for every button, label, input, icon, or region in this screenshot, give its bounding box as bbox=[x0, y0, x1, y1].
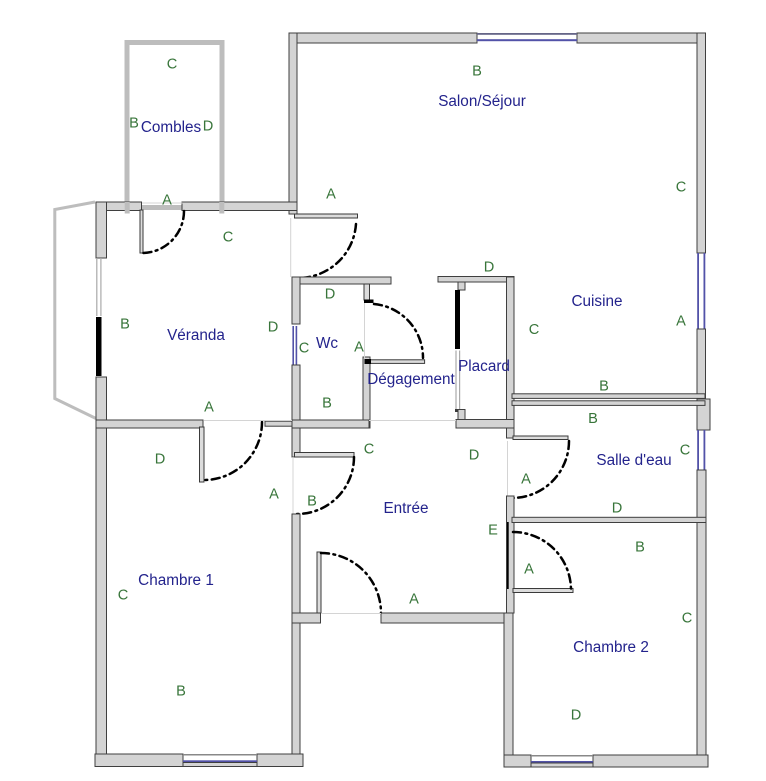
svg-text:A: A bbox=[676, 314, 686, 330]
svg-text:C: C bbox=[364, 442, 375, 458]
svg-text:C: C bbox=[682, 611, 693, 627]
svg-text:D: D bbox=[469, 448, 480, 464]
svg-text:D: D bbox=[571, 708, 582, 724]
svg-text:D: D bbox=[203, 119, 214, 135]
svg-text:B: B bbox=[599, 379, 609, 395]
svg-text:B: B bbox=[635, 540, 645, 556]
svg-text:D: D bbox=[612, 501, 623, 517]
svg-text:Entrée: Entrée bbox=[383, 500, 428, 517]
svg-text:A: A bbox=[269, 487, 279, 503]
svg-text:C: C bbox=[529, 322, 540, 338]
svg-text:Cuisine: Cuisine bbox=[571, 293, 622, 310]
svg-text:B: B bbox=[322, 396, 332, 412]
svg-text:Combles: Combles bbox=[141, 119, 202, 136]
svg-text:B: B bbox=[307, 494, 317, 510]
svg-text:Wc: Wc bbox=[316, 335, 338, 352]
svg-text:D: D bbox=[325, 287, 336, 303]
svg-text:D: D bbox=[268, 320, 279, 336]
svg-text:C: C bbox=[680, 443, 691, 459]
svg-text:A: A bbox=[162, 193, 172, 209]
svg-text:Dégagement: Dégagement bbox=[367, 371, 455, 388]
svg-text:B: B bbox=[120, 317, 130, 333]
svg-text:A: A bbox=[409, 592, 419, 608]
svg-text:A: A bbox=[326, 187, 336, 203]
svg-text:Chambre 2: Chambre 2 bbox=[573, 639, 649, 656]
svg-text:B: B bbox=[176, 684, 186, 700]
svg-text:C: C bbox=[223, 230, 234, 246]
svg-text:D: D bbox=[484, 260, 495, 276]
svg-text:D: D bbox=[155, 452, 166, 468]
svg-text:Chambre 1: Chambre 1 bbox=[138, 572, 214, 589]
svg-text:Salon/Séjour: Salon/Séjour bbox=[438, 93, 526, 110]
svg-text:A: A bbox=[524, 562, 534, 578]
svg-text:B: B bbox=[129, 116, 139, 132]
svg-text:B: B bbox=[588, 411, 598, 427]
svg-text:C: C bbox=[299, 341, 310, 357]
svg-text:C: C bbox=[118, 588, 129, 604]
svg-text:Placard: Placard bbox=[458, 358, 510, 375]
svg-text:E: E bbox=[488, 523, 498, 539]
svg-text:Salle d'eau: Salle d'eau bbox=[596, 452, 671, 469]
svg-text:C: C bbox=[676, 180, 687, 196]
svg-text:Véranda: Véranda bbox=[167, 327, 225, 344]
svg-text:A: A bbox=[521, 472, 531, 488]
svg-text:A: A bbox=[204, 400, 214, 416]
svg-text:A: A bbox=[354, 340, 364, 356]
svg-text:C: C bbox=[167, 57, 178, 73]
svg-text:B: B bbox=[472, 64, 482, 80]
